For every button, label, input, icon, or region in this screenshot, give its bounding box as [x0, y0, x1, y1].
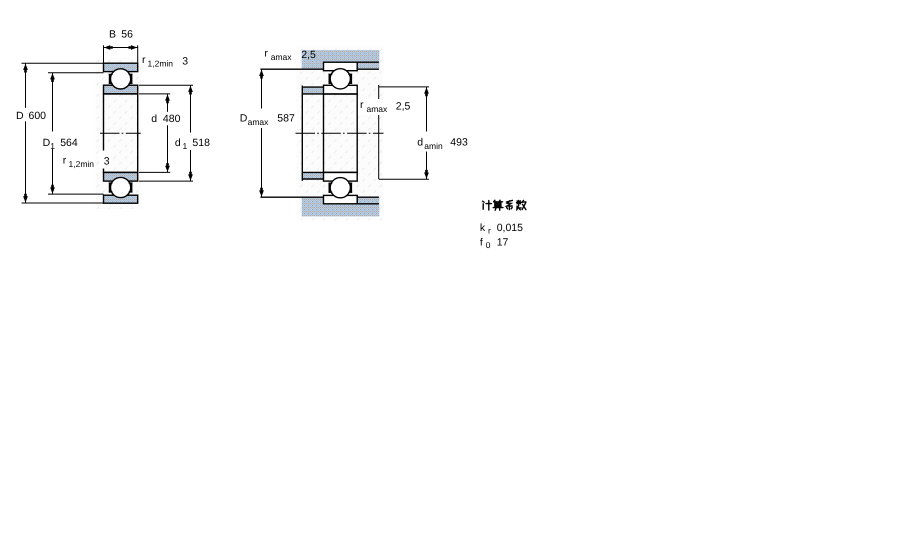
- svg-text:3: 3: [104, 156, 110, 168]
- svg-text:587: 587: [277, 113, 295, 125]
- svg-text:493: 493: [450, 137, 468, 149]
- svg-text:D: D: [240, 113, 248, 125]
- svg-text:k: k: [480, 222, 486, 234]
- svg-text:17: 17: [497, 237, 509, 249]
- svg-text:d: d: [175, 137, 181, 149]
- svg-text:1: 1: [50, 141, 55, 151]
- svg-text:56: 56: [121, 29, 133, 41]
- svg-text:1,2min: 1,2min: [69, 159, 95, 169]
- svg-text:B: B: [109, 29, 116, 41]
- svg-text:d: d: [417, 137, 423, 149]
- svg-text:r: r: [264, 47, 268, 59]
- svg-text:amax: amax: [271, 52, 293, 62]
- svg-text:2,5: 2,5: [396, 101, 411, 113]
- svg-text:600: 600: [29, 110, 47, 122]
- svg-text:2,5: 2,5: [301, 49, 316, 61]
- svg-text:r: r: [488, 226, 491, 236]
- svg-text:amax: amax: [248, 117, 270, 127]
- svg-text:D: D: [16, 110, 24, 122]
- svg-text:564: 564: [60, 137, 78, 149]
- svg-text:r: r: [142, 54, 146, 66]
- svg-text:r: r: [63, 155, 67, 167]
- svg-text:3: 3: [182, 55, 188, 67]
- svg-text:amin: amin: [424, 141, 443, 151]
- svg-text:1: 1: [183, 141, 188, 151]
- svg-text:d: d: [151, 113, 157, 125]
- svg-text:r: r: [360, 99, 364, 111]
- svg-text:480: 480: [163, 113, 181, 125]
- svg-text:f: f: [480, 237, 483, 249]
- svg-text:0: 0: [486, 240, 491, 250]
- svg-text:0,015: 0,015: [497, 222, 523, 234]
- svg-text:1,2min: 1,2min: [148, 59, 174, 69]
- svg-text:518: 518: [192, 137, 210, 149]
- svg-text:amax: amax: [367, 104, 389, 114]
